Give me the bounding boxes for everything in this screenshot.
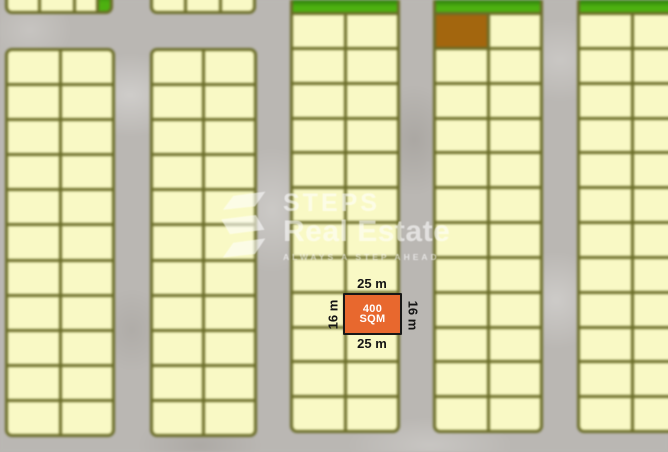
plot-parcel [634, 15, 668, 47]
plot-parcel [293, 120, 344, 152]
plot-parcel [580, 363, 631, 395]
plot-parcel [347, 15, 398, 47]
plot-parcel [62, 402, 113, 434]
plot-parcel [153, 402, 202, 434]
plot-parcel [205, 226, 254, 258]
plot-parcel [490, 85, 541, 117]
block-1-top-partial [5, 0, 113, 14]
highlighted-plot[interactable]: 400 SQM [343, 293, 402, 335]
green-parcel [99, 0, 110, 11]
plot-parcel [580, 294, 631, 326]
plot-parcel [293, 50, 344, 82]
plot-parcel [62, 367, 113, 399]
plot-parcel [153, 332, 202, 364]
plot-parcel [205, 367, 254, 399]
plot-parcel [436, 259, 487, 291]
plot-parcel [347, 50, 398, 82]
plot-parcel [205, 86, 254, 118]
plot-parcel [293, 224, 344, 256]
plot-parcel [8, 367, 59, 399]
plot-parcel [153, 226, 202, 258]
plot-parcel [347, 363, 398, 395]
plot-parcel [634, 154, 668, 186]
plot-parcel [436, 329, 487, 361]
plot-parcel [8, 0, 38, 11]
plot-parcel [205, 191, 254, 223]
plot-parcel [580, 120, 631, 152]
plot-parcel [205, 51, 254, 83]
plot-parcel [62, 121, 113, 153]
plot-parcel [634, 224, 668, 256]
plot-parcel [293, 363, 344, 395]
plot-parcel [634, 363, 668, 395]
plot-parcel [436, 50, 487, 82]
plot-parcel [634, 259, 668, 291]
plot-parcel [634, 189, 668, 221]
plot-parcel [347, 120, 398, 152]
block-3 [290, 0, 400, 433]
plot-parcel [580, 50, 631, 82]
plot-parcel [490, 329, 541, 361]
plot-parcel [580, 85, 631, 117]
plot-parcel [205, 121, 254, 153]
plot-parcel [436, 363, 487, 395]
plot-parcel [580, 259, 631, 291]
block-2-top-partial [150, 0, 256, 14]
plot-parcel [41, 0, 73, 11]
plot-parcel [8, 402, 59, 434]
plot-parcel [153, 191, 202, 223]
plot-parcel [293, 85, 344, 117]
plot-parcel [580, 189, 631, 221]
plot-parcel [347, 224, 398, 256]
plot-parcel [8, 86, 59, 118]
roads-surface [0, 0, 668, 452]
dimension-label-top: 25 m [342, 276, 402, 291]
plot-parcel [62, 156, 113, 188]
plot-parcel [436, 154, 487, 186]
plot-parcel [347, 398, 398, 430]
block-4 [433, 0, 543, 433]
plot-parcel [187, 0, 218, 11]
plot-parcel [62, 86, 113, 118]
plot-parcel [62, 191, 113, 223]
land-plot-map: STEPS Real Estate ALWAYS A STEP AHEAD 25… [0, 0, 668, 452]
plot-parcel [634, 398, 668, 430]
plot-parcel [580, 398, 631, 430]
plot-parcel [634, 120, 668, 152]
plot-parcel [436, 224, 487, 256]
plot-parcel [205, 156, 254, 188]
plot-parcel [62, 332, 113, 364]
green-zone-strip [580, 0, 668, 12]
plot-parcel [293, 189, 344, 221]
plot-parcel [436, 85, 487, 117]
plot-parcel [490, 189, 541, 221]
plot-parcel [205, 402, 254, 434]
map-background [0, 0, 668, 452]
plot-parcel [580, 154, 631, 186]
plot-parcel [153, 367, 202, 399]
dimension-label-right: 16 m [406, 286, 421, 346]
plot-parcel [580, 224, 631, 256]
plot-parcel [8, 156, 59, 188]
plot-parcel [8, 262, 59, 294]
plot-area-unit: SQM [360, 314, 386, 324]
plot-parcel [580, 15, 631, 47]
plot-parcel [490, 120, 541, 152]
plot-parcel [8, 121, 59, 153]
plot-parcel [76, 0, 96, 11]
plot-parcel [153, 86, 202, 118]
plot-parcel [62, 297, 113, 329]
green-zone-strip [436, 0, 540, 12]
plot-parcel [153, 156, 202, 188]
plot-parcel [153, 297, 202, 329]
plot-parcel [222, 0, 253, 11]
plot-parcel [153, 0, 184, 11]
plot-parcel [634, 85, 668, 117]
plot-parcel [347, 85, 398, 117]
plot-parcel [62, 51, 113, 83]
plot-parcel [490, 259, 541, 291]
plot-parcel [347, 189, 398, 221]
plot-parcel [490, 154, 541, 186]
green-zone-strip [293, 0, 397, 12]
plot-parcel [490, 50, 541, 82]
plot-parcel [153, 262, 202, 294]
block-1 [5, 48, 115, 437]
plot-parcel [436, 398, 487, 430]
plot-parcel [8, 51, 59, 83]
plot-parcel [205, 262, 254, 294]
plot-parcel [490, 294, 541, 326]
plot-parcel [293, 154, 344, 186]
block-5 [577, 0, 668, 433]
plot-parcel [436, 294, 487, 326]
plot-parcel [8, 191, 59, 223]
plot-parcel [153, 121, 202, 153]
plot-parcel [634, 329, 668, 361]
plot-parcel [293, 398, 344, 430]
plot-parcel [634, 50, 668, 82]
plot-parcel [490, 15, 541, 47]
plot-parcel [436, 189, 487, 221]
plot-parcel [490, 398, 541, 430]
plot-parcel [634, 294, 668, 326]
plot-parcel [8, 226, 59, 258]
plot-parcel [436, 120, 487, 152]
block-2 [150, 48, 257, 437]
plot-parcel [205, 332, 254, 364]
plot-parcel [580, 329, 631, 361]
plot-parcel [153, 51, 202, 83]
plot-parcel [62, 226, 113, 258]
plot-parcel [8, 297, 59, 329]
plot-parcel [347, 154, 398, 186]
plot-parcel [490, 224, 541, 256]
plot-parcel [293, 15, 344, 47]
dimension-label-bottom: 25 m [342, 336, 402, 351]
plot-parcel [62, 262, 113, 294]
dimension-label-left: 16 m [326, 285, 341, 345]
plot-parcel [8, 332, 59, 364]
plot-parcel [490, 363, 541, 395]
plot-parcel [205, 297, 254, 329]
brown-parcel [436, 15, 487, 47]
